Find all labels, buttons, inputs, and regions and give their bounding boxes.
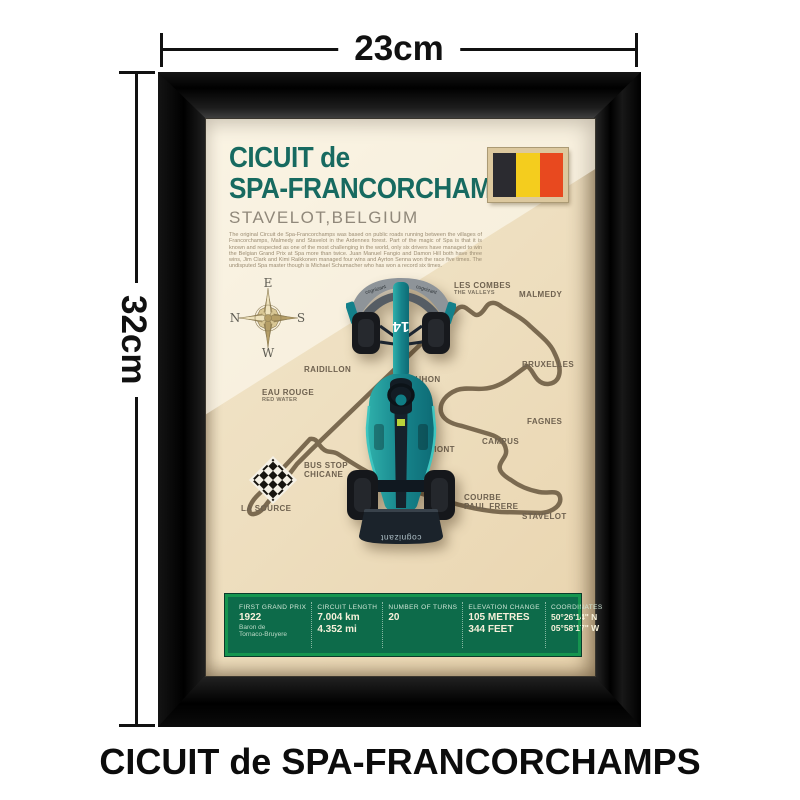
stat-value: 50°26'14" N (551, 612, 603, 623)
rear-wheel-hub (354, 478, 371, 512)
stat-value: 344 FEET (468, 624, 540, 636)
belgium-flag (488, 148, 568, 202)
stat-sub: Tornaco-Bruyere (239, 631, 306, 639)
width-label: 23cm (338, 30, 460, 68)
stat-column: COORDINATES50°26'14" N05°58'17" W (545, 602, 608, 648)
stat-column: FIRST GRAND PRIX1922Baron deTornaco-Bruy… (234, 602, 311, 648)
stat-column: NUMBER OF TURNS20 (382, 602, 462, 648)
flag-stripe-yellow (516, 153, 539, 197)
front-wheel-hub (358, 319, 374, 347)
t-cam (397, 419, 405, 426)
frame-bevel-bottom (158, 675, 641, 727)
product-photo: 23cm 32cm (0, 0, 800, 800)
rear-wing-sponsor: cognizant (380, 533, 421, 543)
stat-sub: Baron de (239, 624, 306, 632)
stat-label: ELEVATION CHANGE (468, 604, 540, 612)
compass-right-letter: S (297, 311, 305, 325)
compass-top-letter: E (264, 278, 273, 290)
poster-title: CICUIT de SPA-FRANCORCHAMPS (229, 143, 525, 205)
product-caption: CICUIT de SPA-FRANCORCHAMPS (0, 741, 800, 783)
f1-model-car: cognizant cognizant 14 (346, 276, 456, 548)
poster-description: The original Circuit de Spa-Francorchamp… (229, 232, 482, 270)
stat-value: 05°58'17" W (551, 623, 603, 634)
rear-axle (374, 480, 428, 492)
stat-value: 105 METRES (468, 612, 540, 624)
compass-left-letter: N (230, 311, 241, 325)
height-dimension: 32cm (119, 71, 155, 727)
front-wheel-hub (428, 319, 444, 347)
flag-stripe-black (493, 153, 516, 197)
frame-bevel-left (158, 72, 205, 727)
stat-column: ELEVATION CHANGE105 METRES344 FEET (462, 602, 545, 648)
dimension-tick (119, 724, 155, 727)
stat-label: COORDINATES (551, 604, 603, 612)
title-line-1: CICUIT de (229, 143, 525, 174)
race-number: 14 (392, 318, 409, 335)
circuit-poster: CICUIT de SPA-FRANCORCHAMPS STAVELOT,BEL… (205, 118, 596, 677)
dimension-line (135, 73, 138, 725)
compass-rose-icon: E N S W (228, 278, 308, 358)
width-dimension: 23cm (160, 33, 638, 67)
sidepod-detail (418, 424, 428, 450)
driver-helmet (396, 395, 407, 406)
circuit-stats-panel: FIRST GRAND PRIX1922Baron deTornaco-Bruy… (225, 594, 581, 656)
compass-bottom-letter: W (262, 346, 275, 358)
sidepod-detail (374, 424, 384, 450)
stat-value: 4.352 mi (317, 624, 377, 636)
rear-wheel-hub (431, 478, 448, 512)
stat-value: 20 (388, 612, 457, 624)
stat-label: FIRST GRAND PRIX (239, 604, 306, 612)
poster-subtitle: STAVELOT,BELGIUM (229, 208, 419, 228)
dimension-tick (635, 33, 638, 67)
stat-label: CIRCUIT LENGTH (317, 604, 377, 612)
stat-label: NUMBER OF TURNS (388, 604, 457, 612)
stat-value: 1922 (239, 612, 306, 624)
frame-bevel-top (158, 72, 641, 118)
stat-value: 7.004 km (317, 612, 377, 624)
stat-column: CIRCUIT LENGTH7.004 km4.352 mi (311, 602, 382, 648)
height-label: 32cm (113, 283, 153, 397)
title-line-2: SPA-FRANCORCHAMPS (229, 174, 525, 205)
flag-stripe-red (540, 153, 563, 197)
